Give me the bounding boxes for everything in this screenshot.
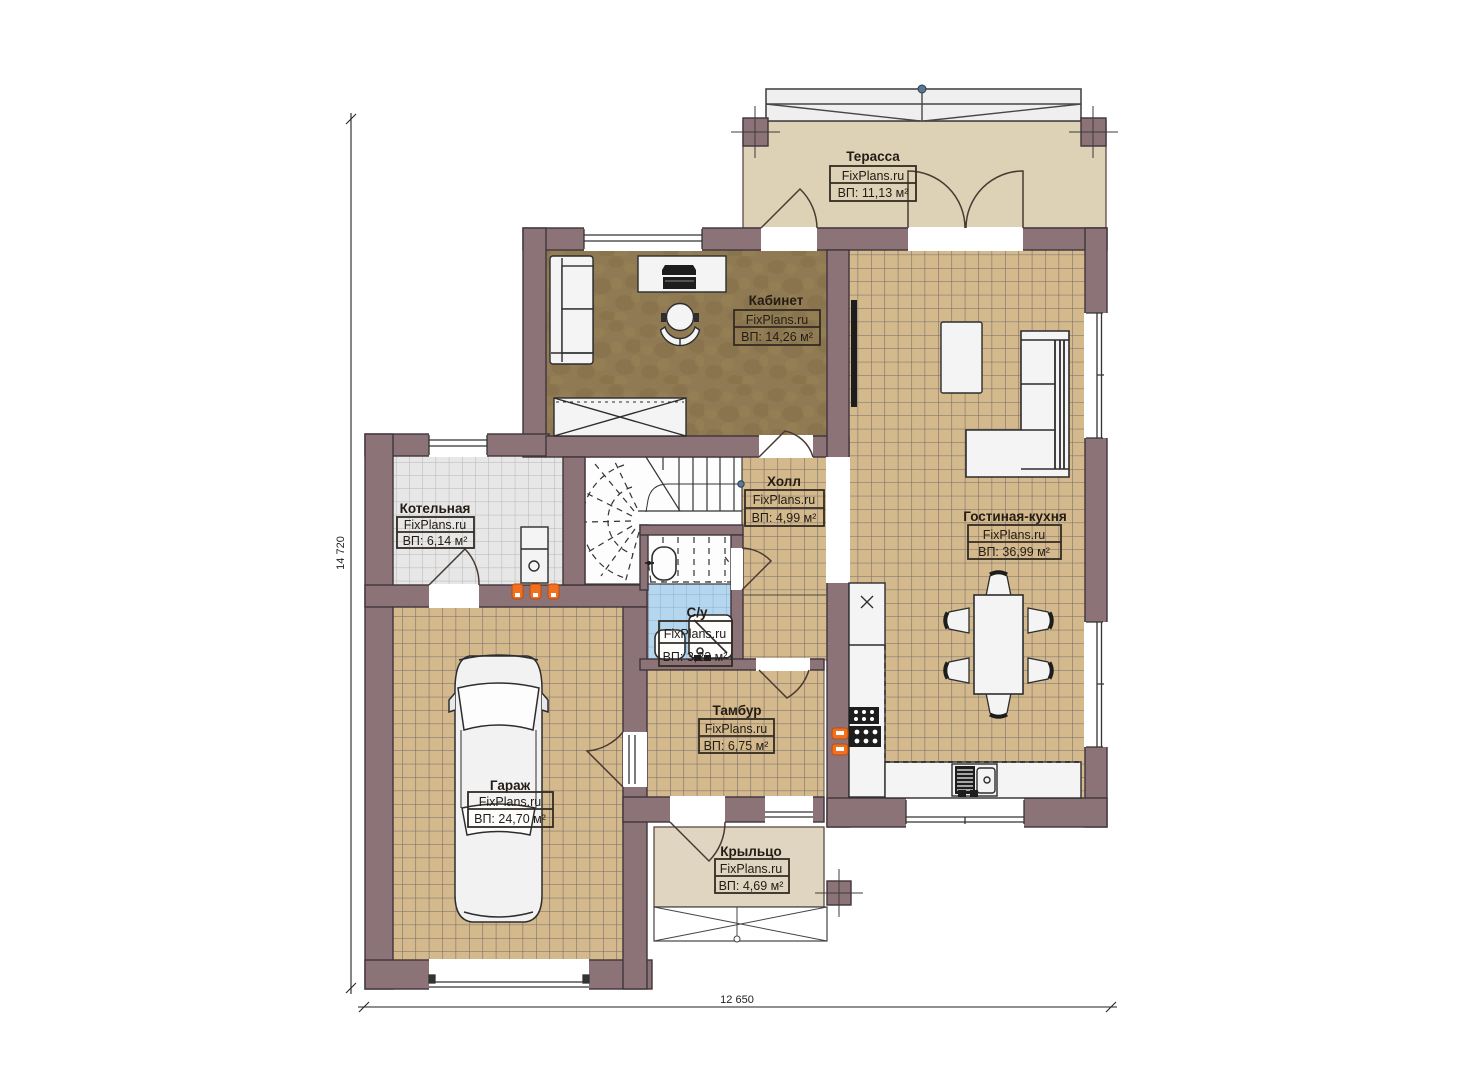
svg-text:FixPlans.ru: FixPlans.ru <box>983 528 1046 542</box>
svg-text:ВП: 11,13 м²: ВП: 11,13 м² <box>838 186 909 200</box>
svg-text:FixPlans.ru: FixPlans.ru <box>746 313 809 327</box>
svg-text:Гостиная-кухня: Гостиная-кухня <box>963 509 1066 524</box>
svg-text:Крыльцо: Крыльцо <box>720 844 781 859</box>
svg-text:FixPlans.ru: FixPlans.ru <box>753 493 816 507</box>
svg-text:Кабинет: Кабинет <box>749 293 804 308</box>
svg-text:FixPlans.ru: FixPlans.ru <box>404 518 467 532</box>
svg-text:ВП: 4,99 м²: ВП: 4,99 м² <box>752 511 817 525</box>
svg-text:С/у: С/у <box>686 605 708 620</box>
svg-text:12 650: 12 650 <box>720 994 754 1006</box>
svg-text:ВП: 24,70 м²: ВП: 24,70 м² <box>474 812 546 826</box>
svg-text:FixPlans.ru: FixPlans.ru <box>479 795 542 809</box>
svg-text:Холл: Холл <box>767 474 801 489</box>
svg-text:ВП: 4,69 м²: ВП: 4,69 м² <box>719 879 784 893</box>
svg-text:ВП: 6,14 м²: ВП: 6,14 м² <box>403 534 468 548</box>
svg-text:ВП: 36,99 м²: ВП: 36,99 м² <box>978 545 1050 559</box>
svg-text:ВП: 3,23 м²: ВП: 3,23 м² <box>663 650 728 664</box>
svg-text:Терасса: Терасса <box>846 149 900 164</box>
svg-text:Котельная: Котельная <box>400 501 471 516</box>
svg-text:FixPlans.ru: FixPlans.ru <box>720 862 783 876</box>
svg-text:Гараж: Гараж <box>490 778 531 793</box>
svg-text:ВП: 6,75 м²: ВП: 6,75 м² <box>704 739 769 753</box>
svg-text:Тамбур: Тамбур <box>713 703 762 718</box>
svg-text:14 720: 14 720 <box>335 536 347 570</box>
svg-text:FixPlans.ru: FixPlans.ru <box>664 627 727 641</box>
svg-text:ВП: 14,26 м²: ВП: 14,26 м² <box>741 330 813 344</box>
svg-text:FixPlans.ru: FixPlans.ru <box>705 722 768 736</box>
svg-text:FixPlans.ru: FixPlans.ru <box>842 169 905 183</box>
